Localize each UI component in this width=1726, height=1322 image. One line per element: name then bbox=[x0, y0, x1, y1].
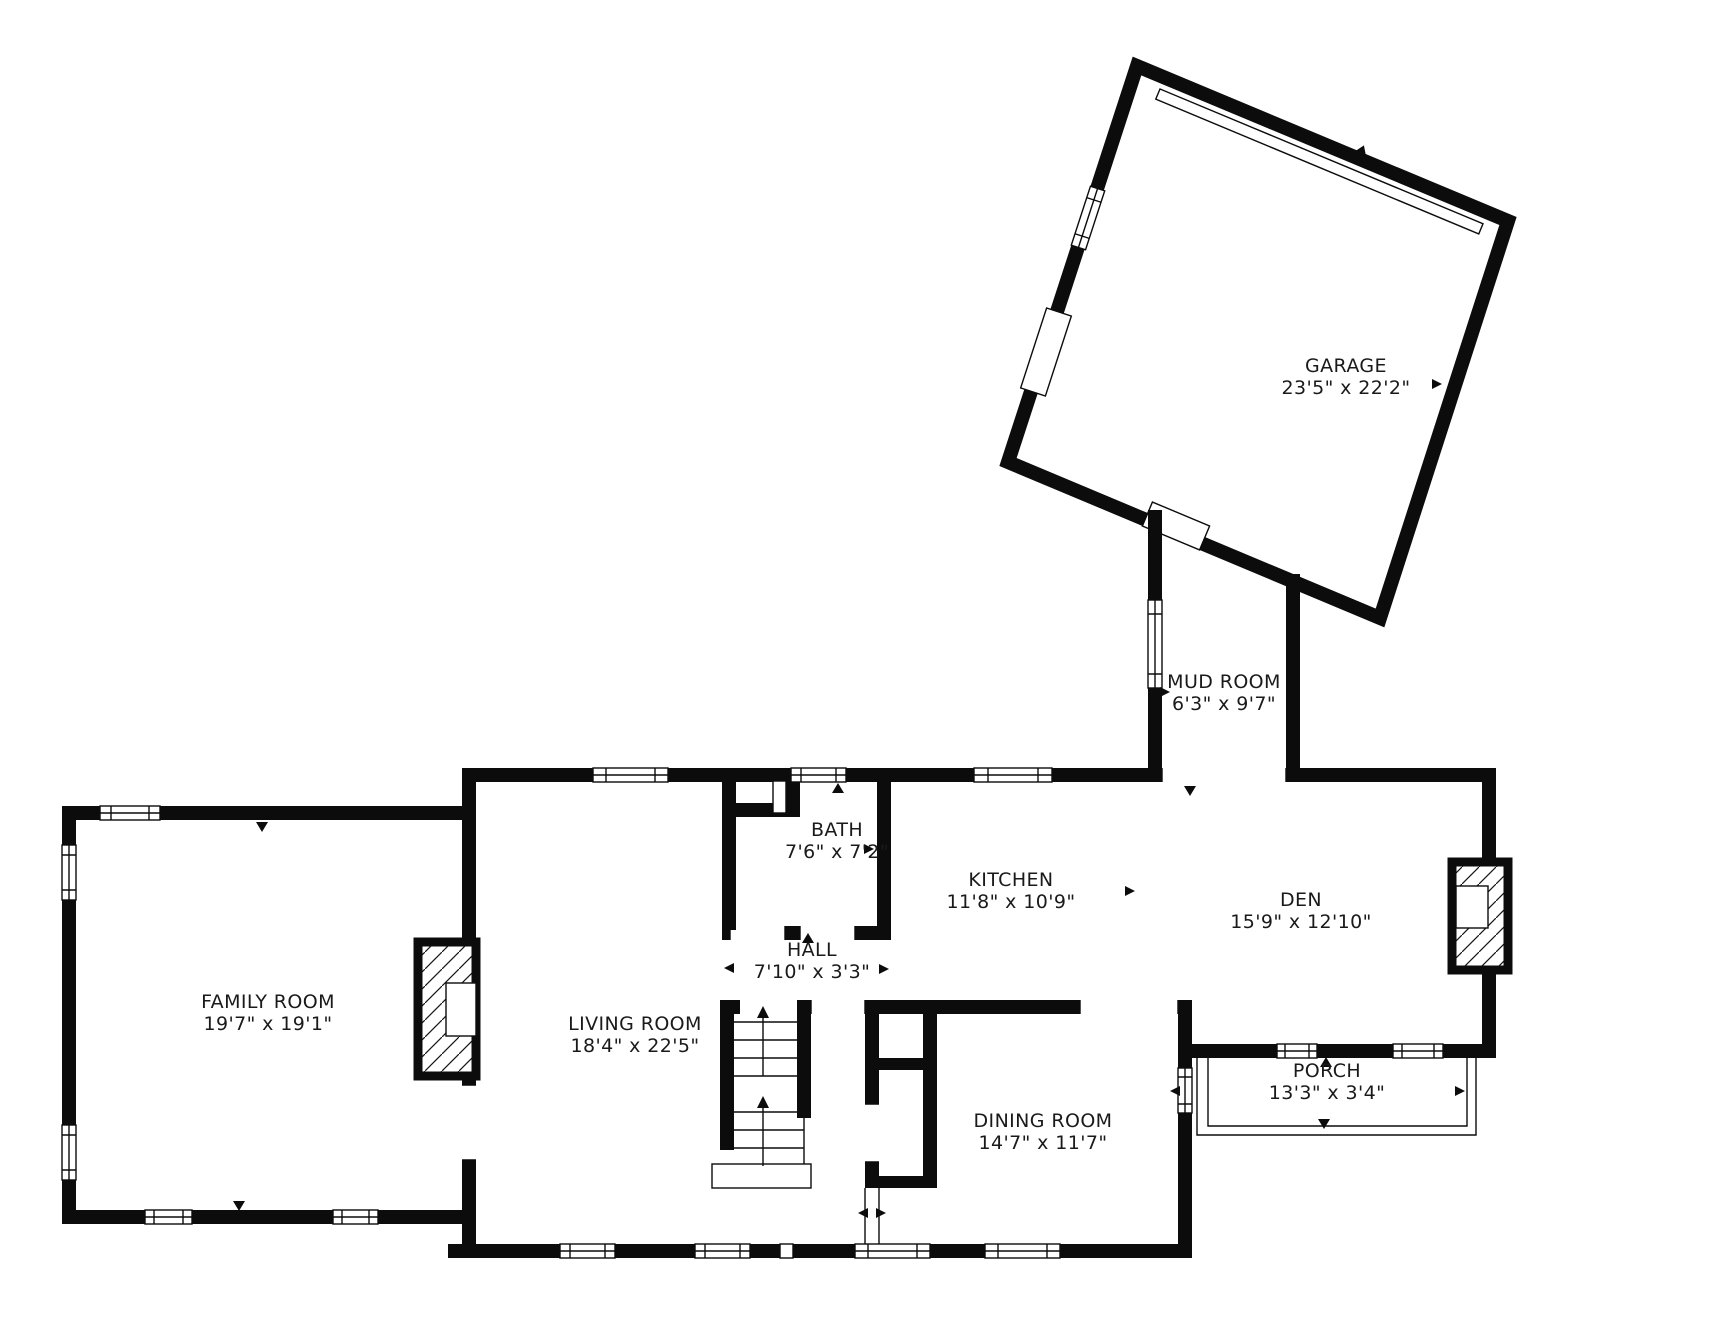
room-label-bath: BATH bbox=[811, 819, 863, 841]
window bbox=[100, 806, 160, 820]
room-label-den: DEN bbox=[1280, 889, 1322, 911]
window bbox=[593, 768, 668, 782]
room-dims-living-room: 18'4" x 22'5" bbox=[571, 1035, 700, 1057]
room-dims-mud-room: 6'3" x 9'7" bbox=[1172, 693, 1276, 715]
den-fireplace bbox=[1452, 862, 1508, 970]
window bbox=[1393, 1044, 1443, 1058]
window bbox=[1178, 1068, 1192, 1113]
window bbox=[145, 1210, 192, 1224]
room-dims-hall: 7'10" x 3'3" bbox=[754, 961, 871, 983]
room-dims-family-room: 19'7" x 19'1" bbox=[204, 1013, 333, 1035]
window bbox=[791, 768, 846, 782]
room-label-kitchen: KITCHEN bbox=[968, 869, 1053, 891]
window bbox=[62, 845, 76, 900]
firebox bbox=[1456, 886, 1488, 928]
stairs-up-arrow-icon bbox=[757, 1096, 769, 1108]
room-dims-dining-room: 14'7" x 11'7" bbox=[979, 1132, 1108, 1154]
mud-room-window bbox=[1148, 600, 1162, 688]
room-label-hall: HALL bbox=[787, 939, 837, 961]
floorplan-page: GARAGE23'5" x 22'2"MUD ROOM6'3" x 9'7"BA… bbox=[0, 0, 1726, 1322]
floorplan-svg: GARAGE23'5" x 22'2"MUD ROOM6'3" x 9'7"BA… bbox=[0, 0, 1726, 1322]
window bbox=[855, 1244, 930, 1258]
family-room-fireplace bbox=[418, 942, 476, 1076]
window bbox=[333, 1210, 378, 1224]
room-label-mud-room: MUD ROOM bbox=[1167, 671, 1281, 693]
garage-structure bbox=[1008, 66, 1508, 618]
window bbox=[974, 768, 1052, 782]
room-label-living-room: LIVING ROOM bbox=[568, 1013, 702, 1035]
room-dims-bath: 7'6" x 7'2" bbox=[785, 841, 889, 863]
staircase bbox=[712, 1006, 811, 1188]
room-label-family-room: FAMILY ROOM bbox=[201, 991, 335, 1013]
room-dims-garage: 23'5" x 22'2" bbox=[1282, 377, 1411, 399]
room-dims-den: 15'9" x 12'10" bbox=[1230, 911, 1371, 933]
window bbox=[1277, 1044, 1317, 1058]
room-dims-kitchen: 11'8" x 10'9" bbox=[947, 891, 1076, 913]
window bbox=[695, 1244, 750, 1258]
room-label-porch: PORCH bbox=[1293, 1060, 1361, 1082]
stairs-up-arrow-icon bbox=[757, 1006, 769, 1018]
window bbox=[560, 1244, 615, 1258]
room-label-garage: GARAGE bbox=[1305, 355, 1387, 377]
room-dims-porch: 13'3" x 3'4" bbox=[1269, 1082, 1386, 1104]
room-label-dining-room: DINING ROOM bbox=[974, 1110, 1113, 1132]
stair-landing bbox=[712, 1164, 811, 1188]
firebox bbox=[446, 983, 476, 1036]
window bbox=[62, 1125, 76, 1180]
window bbox=[985, 1244, 1060, 1258]
bath-closet-door bbox=[773, 781, 786, 813]
